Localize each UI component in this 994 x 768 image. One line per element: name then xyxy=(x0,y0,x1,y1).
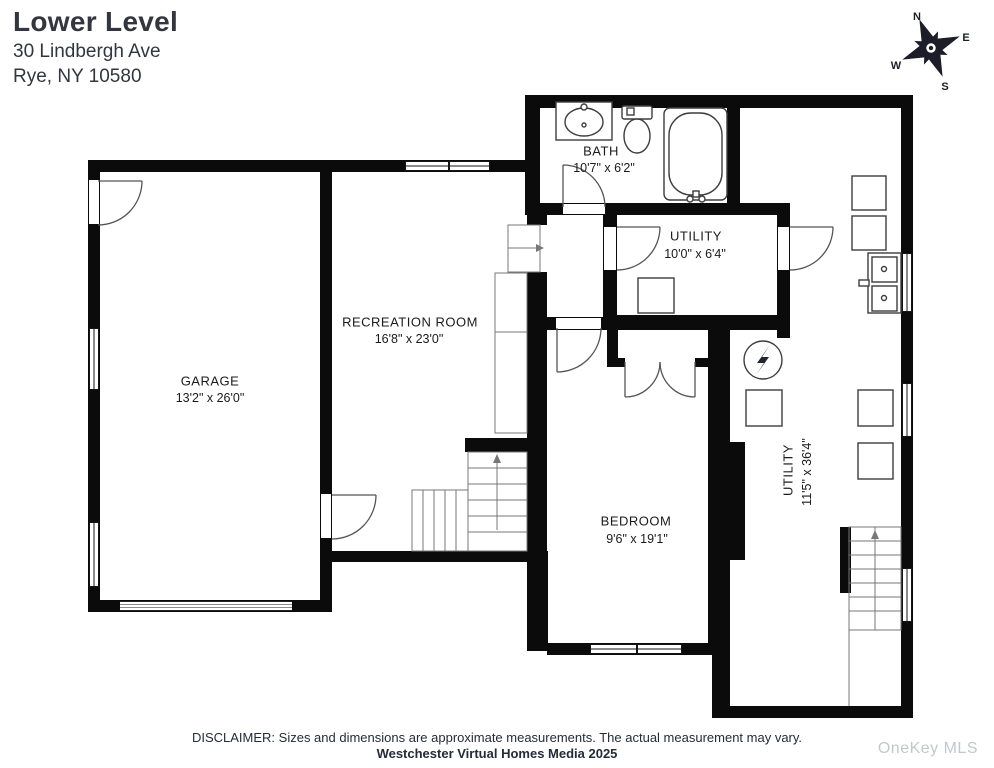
window-divider xyxy=(448,161,450,171)
bathtub xyxy=(664,108,727,202)
recreation-room-label: RECREATION ROOM xyxy=(342,315,478,330)
bath-dims: 10'7" x 6'2" xyxy=(573,161,635,175)
stairs-main xyxy=(412,452,527,551)
garage-dims: 13'2" x 26'0" xyxy=(176,391,245,405)
appliance-square xyxy=(638,278,674,313)
window xyxy=(405,161,490,171)
recreation-room-dims: 16'8" x 23'0" xyxy=(375,332,444,346)
stair-closet xyxy=(495,273,527,433)
disclaimer-text: DISCLAIMER: Sizes and dimensions are app… xyxy=(0,730,994,745)
wall xyxy=(525,95,540,215)
wall xyxy=(527,203,547,225)
floor-plan-page: Lower Level 30 Lindbergh Ave Rye, NY 105… xyxy=(0,0,994,768)
wall xyxy=(708,442,745,560)
utility-large-label: UTILITY xyxy=(781,444,796,496)
stairs-upper-landing xyxy=(508,225,544,272)
wall xyxy=(527,272,547,553)
wall xyxy=(840,527,851,593)
door-opening xyxy=(556,318,601,329)
wall xyxy=(712,706,913,718)
door-opening xyxy=(625,358,695,367)
toilet xyxy=(622,106,652,153)
compass-rose: N E S W xyxy=(891,8,972,93)
wall xyxy=(527,553,548,651)
compass-e-label: E xyxy=(962,32,969,44)
compass-w-label: W xyxy=(891,60,902,72)
window xyxy=(902,568,912,622)
page-title: Lower Level xyxy=(13,5,178,39)
credit-text: Westchester Virtual Homes Media 2025 xyxy=(0,746,994,761)
garage-door xyxy=(120,601,292,611)
wall xyxy=(525,95,913,108)
door-opening xyxy=(778,227,789,270)
onekey-mls-watermark: OneKey MLS xyxy=(878,740,978,758)
bedroom-label: BEDROOM xyxy=(601,514,672,529)
wall xyxy=(320,551,548,562)
window xyxy=(902,383,912,437)
stairs-right xyxy=(849,527,901,706)
window xyxy=(590,644,682,654)
door-opening xyxy=(89,180,99,224)
utility-small-label: UTILITY xyxy=(670,229,722,244)
window-divider xyxy=(636,644,638,654)
door-opening xyxy=(604,227,616,270)
bedroom-dims: 9'6" x 19'1" xyxy=(606,532,668,546)
electrical-panel-icon xyxy=(744,341,782,379)
window xyxy=(902,253,912,312)
wall xyxy=(465,438,530,452)
wall xyxy=(603,315,790,330)
garage-label: GARAGE xyxy=(181,374,240,389)
wall xyxy=(727,95,740,208)
utility-small-dims: 10'0" x 6'4" xyxy=(664,247,726,261)
wall xyxy=(320,160,332,612)
door-opening xyxy=(321,494,331,538)
compass-s-label: S xyxy=(941,81,948,93)
door-opening xyxy=(563,204,605,214)
laundry-sink xyxy=(859,253,901,313)
address-line-2: Rye, NY 10580 xyxy=(13,64,178,89)
address-line-1: 30 Lindbergh Ave xyxy=(13,39,178,64)
compass-n-label: N xyxy=(913,11,921,23)
plan-graphics: N E S W xyxy=(0,0,994,768)
window xyxy=(89,328,99,390)
bath-label: BATH xyxy=(583,144,619,159)
utility-large-dims: 11'5" x 36'4" xyxy=(800,438,814,506)
title-block: Lower Level 30 Lindbergh Ave Rye, NY 105… xyxy=(13,5,178,89)
window xyxy=(89,522,99,587)
